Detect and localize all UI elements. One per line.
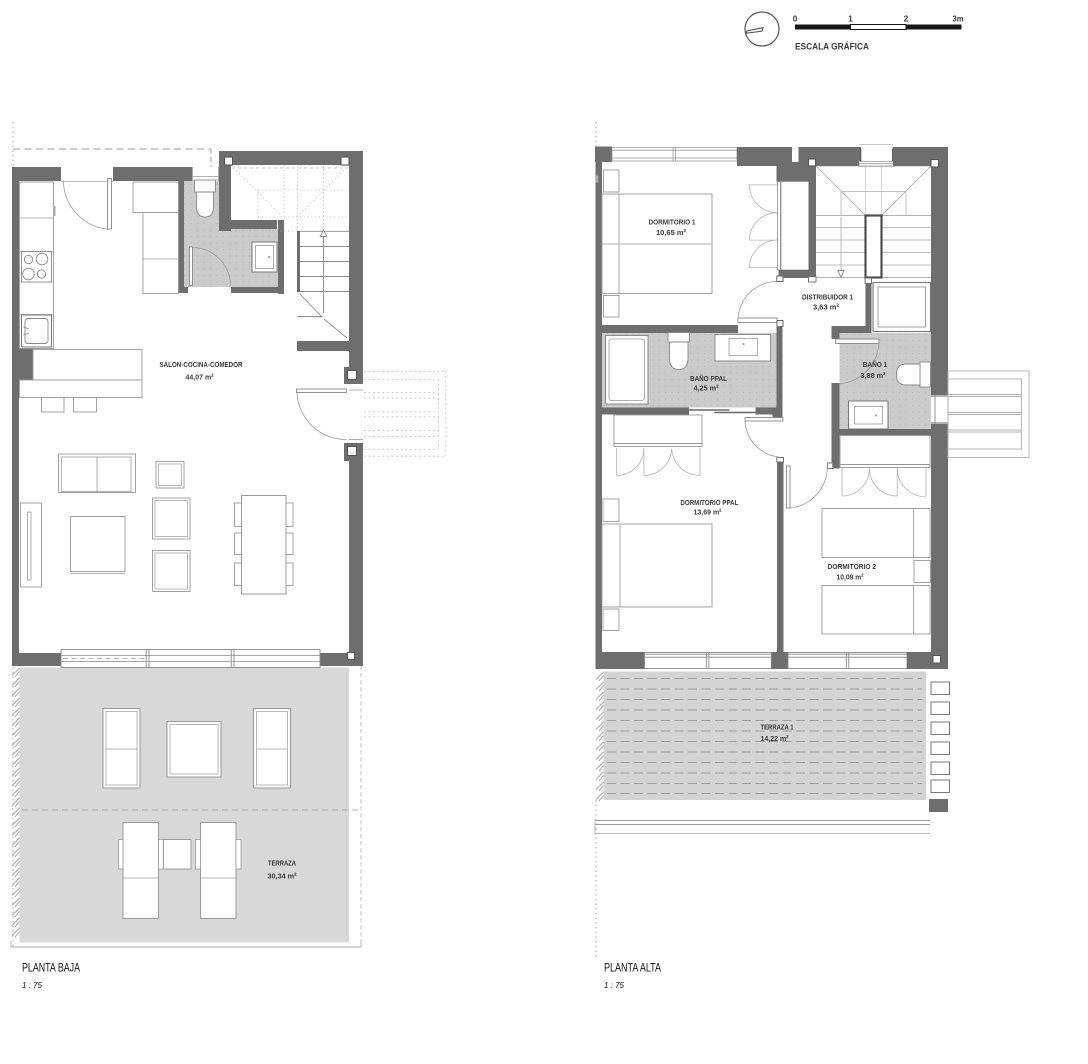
svg-text:2: 2 — [904, 15, 909, 24]
svg-text:1 : 75: 1 : 75 — [604, 981, 625, 990]
svg-text:DORMITORIO PPAL: DORMITORIO PPAL — [680, 498, 738, 507]
svg-text:1 : 75: 1 : 75 — [22, 981, 43, 990]
svg-text:SALON-COCINA-COMEDOR: SALON-COCINA-COMEDOR — [160, 360, 243, 369]
svg-text:DORMITORIO 2: DORMITORIO 2 — [828, 562, 877, 571]
svg-text:PLANTA ALTA: PLANTA ALTA — [604, 961, 661, 975]
svg-text:3,63 m²: 3,63 m² — [813, 303, 839, 312]
svg-text:10,65 m²: 10,65 m² — [656, 228, 686, 237]
svg-text:4,25 m²: 4,25 m² — [694, 384, 719, 393]
svg-text:1: 1 — [848, 15, 853, 24]
svg-text:ESCALA GRÁFICA: ESCALA GRÁFICA — [795, 42, 869, 52]
svg-text:30,34 m²: 30,34 m² — [268, 872, 297, 881]
svg-text:0: 0 — [793, 15, 798, 24]
svg-text:BAÑO 1: BAÑO 1 — [863, 360, 888, 369]
svg-text:3m: 3m — [953, 15, 964, 24]
svg-text:10,09 m²: 10,09 m² — [837, 573, 864, 582]
svg-text:DORMITORIO 1: DORMITORIO 1 — [649, 218, 697, 227]
svg-text:13,69 m²: 13,69 m² — [694, 508, 722, 517]
svg-text:TERRAZA: TERRAZA — [268, 859, 296, 868]
svg-text:14,22 m²: 14,22 m² — [761, 734, 789, 743]
svg-text:3,88 m²: 3,88 m² — [861, 371, 886, 380]
svg-text:BAÑO PPAL: BAÑO PPAL — [690, 374, 727, 383]
svg-text:PLANTA BAJA: PLANTA BAJA — [22, 961, 80, 975]
svg-text:DISTRIBUIDOR 1: DISTRIBUIDOR 1 — [802, 293, 854, 302]
svg-text:44,07 m²: 44,07 m² — [186, 373, 214, 382]
svg-text:TERRAZA 1: TERRAZA 1 — [761, 723, 795, 732]
